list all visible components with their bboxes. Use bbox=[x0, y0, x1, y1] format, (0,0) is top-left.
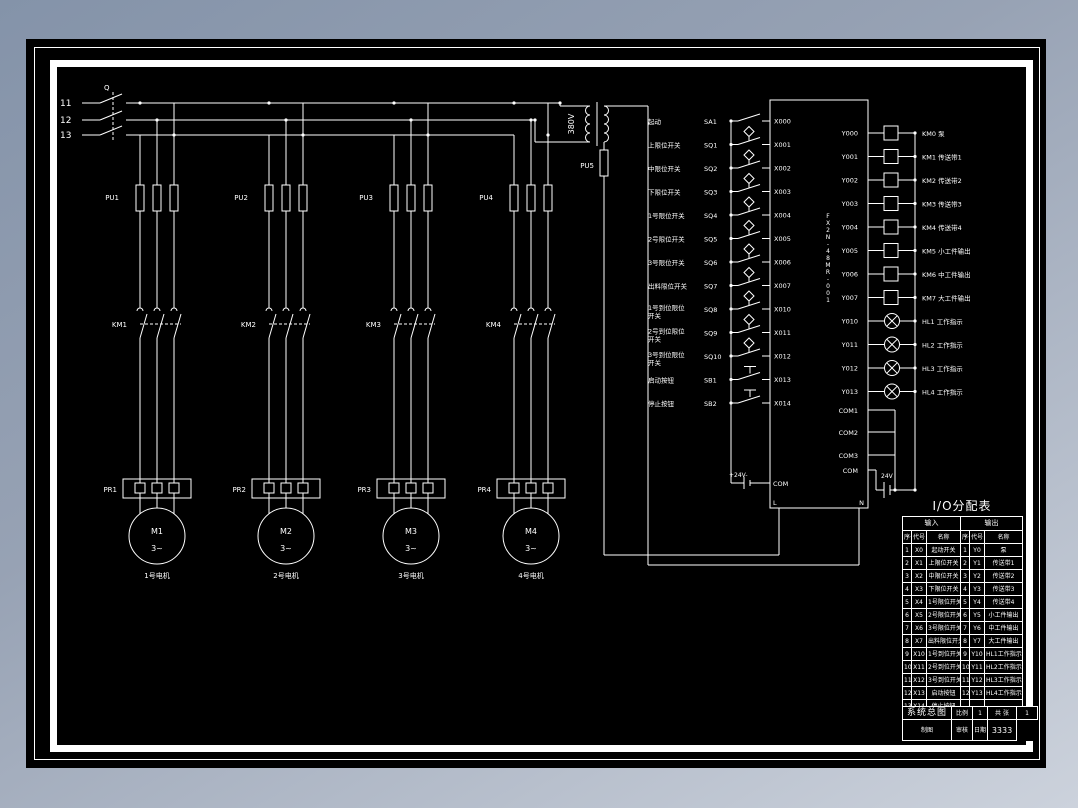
svg-text:3~: 3~ bbox=[151, 544, 163, 553]
io-table-row: 6X52号限位开关6Y5小工件输出 bbox=[903, 609, 1023, 622]
plc-input-row-X011: 2号到位限位开关SQ9X011 bbox=[648, 315, 791, 344]
io-table-cell: X0 bbox=[912, 544, 927, 557]
plc-input-row-X007: 出料限位开关SQ7X007 bbox=[648, 268, 791, 291]
svg-text:HL3 工作指示: HL3 工作指示 bbox=[922, 364, 963, 373]
io-table-cell: 6 bbox=[961, 609, 970, 622]
svg-text:Q: Q bbox=[104, 84, 110, 92]
io-table-cell: 上限位开关 bbox=[927, 557, 961, 570]
io-table-cell: 3 bbox=[961, 570, 970, 583]
io-table-column-header: 序号 bbox=[903, 531, 912, 544]
svg-text:Y012: Y012 bbox=[841, 365, 858, 373]
svg-text:KM2: KM2 bbox=[241, 321, 256, 329]
svg-text:KM0 泵: KM0 泵 bbox=[922, 130, 945, 138]
svg-text:COM3: COM3 bbox=[839, 452, 858, 460]
svg-text:PU5: PU5 bbox=[580, 162, 594, 170]
io-table-cell: 1 bbox=[961, 544, 970, 557]
svg-text:SQ1: SQ1 bbox=[704, 142, 717, 150]
svg-text:X010: X010 bbox=[774, 306, 791, 314]
svg-text:X001: X001 bbox=[774, 141, 791, 149]
io-table-cell: 1号到位开关 bbox=[927, 648, 961, 661]
io-table-cell: 中限位开关 bbox=[927, 570, 961, 583]
io-table-cell: 12 bbox=[961, 687, 970, 700]
cad-viewport[interactable]: 111213QPU1KM1PR1M13~1号电机PU2KM2PR2M23~2号电… bbox=[0, 0, 1078, 808]
svg-text:SQ8: SQ8 bbox=[704, 306, 717, 314]
svg-text:L: L bbox=[773, 499, 777, 507]
svg-text:Y002: Y002 bbox=[841, 177, 858, 185]
io-table-cell: 2 bbox=[961, 557, 970, 570]
title-block-number: 3333 bbox=[988, 720, 1017, 741]
svg-text:SQ4: SQ4 bbox=[704, 212, 717, 220]
svg-text:Y010: Y010 bbox=[841, 318, 858, 326]
plc-input-section: +24V-COM起动SA1X000上限位开关SQ1X001中限位开关SQ2X00… bbox=[648, 114, 791, 489]
plc-input-row-X002: 中限位开关SQ2X002 bbox=[648, 150, 791, 173]
svg-text:开关: 开关 bbox=[648, 311, 662, 320]
plc-output-row-Y004: Y004KM4 传送带4 bbox=[841, 220, 962, 234]
svg-text:出料限位开关: 出料限位开关 bbox=[648, 282, 688, 291]
plc-output-row-Y002: Y002KM2 传送带2 bbox=[841, 173, 962, 187]
svg-text:M1: M1 bbox=[151, 527, 163, 536]
svg-text:SQ9: SQ9 bbox=[704, 330, 717, 338]
io-table-cell: HL4工作指示 bbox=[985, 687, 1023, 700]
svg-text:PU4: PU4 bbox=[479, 194, 493, 202]
svg-text:24V: 24V bbox=[881, 473, 894, 480]
io-allocation-table: 输入输出序号代号名称序号代号名称1X0起动开关1Y0泵2X1上限位开关2Y1传送… bbox=[902, 516, 1023, 713]
io-table-cell: 3号到位开关 bbox=[927, 674, 961, 687]
title-block-sheet-value: 1 bbox=[1017, 707, 1038, 720]
svg-text:12: 12 bbox=[60, 116, 71, 126]
io-table-cell: X13 bbox=[912, 687, 927, 700]
io-table-cell: Y11 bbox=[970, 661, 985, 674]
io-table-cell: 传送带2 bbox=[985, 570, 1023, 583]
motor-branch-3: PU3KM3PR3M33~3号电机 bbox=[357, 101, 445, 580]
svg-text:X002: X002 bbox=[774, 165, 791, 173]
svg-text:PU1: PU1 bbox=[105, 194, 119, 202]
svg-text:380V: 380V bbox=[567, 113, 576, 134]
svg-text:X005: X005 bbox=[774, 235, 791, 243]
svg-text:X013: X013 bbox=[774, 376, 791, 384]
plc-output-section: Y000KM0 泵Y001KM1 传送带1Y002KM2 传送带2Y003KM3… bbox=[839, 126, 971, 498]
svg-text:M2: M2 bbox=[280, 527, 292, 536]
plc-input-row-X001: 上限位开关SQ1X001 bbox=[648, 127, 791, 150]
svg-text:HL2 工作指示: HL2 工作指示 bbox=[922, 341, 963, 350]
svg-text:KM3 传送带3: KM3 传送带3 bbox=[922, 200, 962, 209]
svg-text:3~: 3~ bbox=[405, 544, 417, 553]
io-table-cell: 启动按钮 bbox=[927, 687, 961, 700]
io-table-row: 3X2中限位开关3Y2传送带2 bbox=[903, 570, 1023, 583]
svg-text:KM7 大工件输出: KM7 大工件输出 bbox=[922, 294, 971, 303]
svg-text:2号电机: 2号电机 bbox=[273, 571, 298, 580]
io-table-row: 2X1上限位开关2Y1传送带1 bbox=[903, 557, 1023, 570]
plc-output-row-Y012: Y012HL3 工作指示 bbox=[841, 361, 964, 376]
title-block-drawn-label: 制图 bbox=[903, 720, 952, 741]
plc-input-row-X000: 起动SA1X000 bbox=[648, 114, 791, 126]
plc-input-row-X006: 3号限位开关SQ6X006 bbox=[648, 244, 791, 267]
io-table-cell: 10 bbox=[903, 661, 912, 674]
svg-text:M4: M4 bbox=[525, 527, 537, 536]
io-table-cell: 12 bbox=[903, 687, 912, 700]
io-table-cell: Y13 bbox=[970, 687, 985, 700]
svg-text:Y001: Y001 bbox=[841, 153, 858, 161]
io-table-subheader: 序号代号名称序号代号名称 bbox=[903, 531, 1023, 544]
io-table-cell: 传送带4 bbox=[985, 596, 1023, 609]
io-table-row: 10X112号到位开关10Y11HL2工作指示 bbox=[903, 661, 1023, 674]
svg-text:Y011: Y011 bbox=[841, 341, 858, 349]
io-table-column-header: 代号 bbox=[912, 531, 927, 544]
svg-text:SQ6: SQ6 bbox=[704, 259, 717, 267]
io-table-cell: 8 bbox=[903, 635, 912, 648]
io-table-cell: X10 bbox=[912, 648, 927, 661]
io-table-cell: Y1 bbox=[970, 557, 985, 570]
io-table-row: 7X63号限位开关7Y6中工件输出 bbox=[903, 622, 1023, 635]
io-table-cell: X5 bbox=[912, 609, 927, 622]
svg-text:PR4: PR4 bbox=[477, 486, 491, 494]
io-table-row: 8X7出料限位开关8Y7大工件输出 bbox=[903, 635, 1023, 648]
svg-text:X006: X006 bbox=[774, 259, 791, 267]
svg-text:SB2: SB2 bbox=[704, 400, 717, 408]
svg-text:4号电机: 4号电机 bbox=[518, 571, 543, 580]
svg-text:KM1 传送带1: KM1 传送带1 bbox=[922, 153, 962, 162]
io-table-cell: Y2 bbox=[970, 570, 985, 583]
svg-text:COM2: COM2 bbox=[839, 429, 858, 437]
io-table-cell: Y10 bbox=[970, 648, 985, 661]
title-block-title: 系统总图 bbox=[903, 707, 952, 720]
io-table-cell: 10 bbox=[961, 661, 970, 674]
plc-com-terminal-COM: COM bbox=[843, 467, 884, 490]
svg-text:2号到位限位: 2号到位限位 bbox=[648, 327, 685, 336]
plc-output-row-Y006: Y006KM6 中工件输出 bbox=[841, 267, 971, 281]
title-block-sheet-label: 共 张 bbox=[988, 707, 1017, 720]
io-table-cell: 7 bbox=[961, 622, 970, 635]
io-table-column-header: 代号 bbox=[970, 531, 985, 544]
title-block-check-label: 审核 bbox=[952, 720, 973, 741]
svg-text:KM4: KM4 bbox=[486, 321, 502, 329]
io-table-cell: 2号限位开关 bbox=[927, 609, 961, 622]
io-table-cell: X12 bbox=[912, 674, 927, 687]
io-table-cell: X4 bbox=[912, 596, 927, 609]
io-table-cell: HL3工作指示 bbox=[985, 674, 1023, 687]
power-rails: 111213Q bbox=[60, 84, 560, 141]
svg-text:PU3: PU3 bbox=[359, 194, 373, 202]
svg-text:Y013: Y013 bbox=[841, 388, 858, 396]
svg-text:X004: X004 bbox=[774, 212, 791, 220]
io-table-cell: 11 bbox=[903, 674, 912, 687]
title-block: 系统总图比例1共 张1制图审核日期3333 bbox=[902, 706, 1038, 741]
svg-text:SQ2: SQ2 bbox=[704, 165, 717, 173]
svg-text:1号限位开关: 1号限位开关 bbox=[648, 211, 685, 220]
svg-text:X007: X007 bbox=[774, 282, 791, 290]
io-table-cell: 6 bbox=[903, 609, 912, 622]
io-table-cell: Y7 bbox=[970, 635, 985, 648]
svg-text:3号电机: 3号电机 bbox=[398, 571, 423, 580]
io-table-cell: 1号限位开关 bbox=[927, 596, 961, 609]
svg-text:开关: 开关 bbox=[648, 335, 662, 344]
svg-text:SQ3: SQ3 bbox=[704, 189, 717, 197]
plc-input-row-X014: 停止按钮SB2X014 bbox=[648, 390, 791, 408]
io-table-column-header: 序号 bbox=[961, 531, 970, 544]
svg-text:KM5 小工件输出: KM5 小工件输出 bbox=[922, 247, 971, 256]
plc-output-row-Y000: Y000KM0 泵 bbox=[841, 126, 945, 140]
svg-text:COM: COM bbox=[773, 480, 788, 488]
svg-text:停止按钮: 停止按钮 bbox=[648, 399, 675, 408]
io-table-cell: 4 bbox=[961, 583, 970, 596]
svg-text:HL1 工作指示: HL1 工作指示 bbox=[922, 317, 963, 326]
svg-text:中限位开关: 中限位开关 bbox=[648, 164, 681, 173]
svg-text:SB1: SB1 bbox=[704, 377, 717, 385]
io-table-cell: 2 bbox=[903, 557, 912, 570]
plc-input-row-X013: 启动按钮SB1X013 bbox=[648, 367, 791, 385]
plc-model-label: FX2N-48MR-001 bbox=[825, 213, 830, 304]
io-table-cell: 4 bbox=[903, 583, 912, 596]
io-table-row: 1X0起动开关1Y0泵 bbox=[903, 544, 1023, 557]
svg-text:3~: 3~ bbox=[525, 544, 537, 553]
plc-output-row-Y001: Y001KM1 传送带1 bbox=[841, 150, 962, 164]
svg-text:Y007: Y007 bbox=[841, 294, 858, 302]
plc-input-row-X005: 2号限位开关SQ5X005 bbox=[648, 221, 791, 244]
svg-text:3~: 3~ bbox=[280, 544, 292, 553]
svg-text:1号到位限位: 1号到位限位 bbox=[648, 303, 685, 312]
svg-text:SA1: SA1 bbox=[704, 118, 717, 126]
io-table-cell: 起动开关 bbox=[927, 544, 961, 557]
svg-text:KM1: KM1 bbox=[112, 321, 127, 329]
svg-text:COM1: COM1 bbox=[839, 407, 858, 415]
io-table-cell: X3 bbox=[912, 583, 927, 596]
io-table-cell: Y6 bbox=[970, 622, 985, 635]
svg-text:X003: X003 bbox=[774, 188, 791, 196]
plc-output-row-Y003: Y003KM3 传送带3 bbox=[841, 197, 962, 211]
io-table-cell: 7 bbox=[903, 622, 912, 635]
plc-com-terminal-COM1: COM1 bbox=[839, 407, 895, 415]
svg-text:2号限位开关: 2号限位开关 bbox=[648, 235, 685, 244]
plc-input-row-X012: 3号到位限位开关SQ10X012 bbox=[648, 338, 791, 367]
svg-text:11: 11 bbox=[60, 99, 71, 109]
io-table-cell: 8 bbox=[961, 635, 970, 648]
io-table-cell: HL1工作指示 bbox=[985, 648, 1023, 661]
io-table-row: 11X123号到位开关11Y12HL3工作指示 bbox=[903, 674, 1023, 687]
plc-output-row-Y013: Y013HL4 工作指示 bbox=[841, 384, 964, 399]
io-table-cell: Y5 bbox=[970, 609, 985, 622]
io-table-row: 4X3下限位开关4Y3传送带3 bbox=[903, 583, 1023, 596]
svg-text:SQ5: SQ5 bbox=[704, 236, 717, 244]
svg-text:X011: X011 bbox=[774, 329, 791, 337]
svg-text:PR2: PR2 bbox=[232, 486, 246, 494]
io-table-cell: 9 bbox=[903, 648, 912, 661]
plc-output-row-Y005: Y005KM5 小工件输出 bbox=[841, 244, 971, 258]
svg-text:M3: M3 bbox=[405, 527, 417, 536]
plc-output-row-Y007: Y007KM7 大工件输出 bbox=[841, 291, 971, 305]
svg-text:PU2: PU2 bbox=[234, 194, 248, 202]
io-table-cell: X2 bbox=[912, 570, 927, 583]
plc-input-row-X004: 1号限位开关SQ4X004 bbox=[648, 197, 791, 220]
svg-text:Y005: Y005 bbox=[841, 247, 858, 255]
io-table-cell: Y3 bbox=[970, 583, 985, 596]
io-table-cell: 中工件输出 bbox=[985, 622, 1023, 635]
io-table-cell: Y12 bbox=[970, 674, 985, 687]
svg-text:X012: X012 bbox=[774, 353, 791, 361]
plc-input-row-X003: 下限位开关SQ3X003 bbox=[648, 174, 791, 197]
svg-text:Y000: Y000 bbox=[841, 130, 858, 138]
io-table-cell: 泵 bbox=[985, 544, 1023, 557]
plc-input-row-X010: 1号到位限位开关SQ8X010 bbox=[648, 291, 791, 320]
svg-text:3号到位限位: 3号到位限位 bbox=[648, 350, 685, 359]
svg-text:1号电机: 1号电机 bbox=[144, 571, 169, 580]
svg-text:N: N bbox=[859, 499, 864, 507]
io-table-cell: X6 bbox=[912, 622, 927, 635]
svg-text:上限位开关: 上限位开关 bbox=[648, 141, 681, 150]
svg-text:KM4 传送带4: KM4 传送带4 bbox=[922, 223, 962, 232]
motor-branch-2: PU2KM2PR2M23~2号电机 bbox=[232, 101, 320, 580]
io-table-cell: 传送带1 bbox=[985, 557, 1023, 570]
svg-text:13: 13 bbox=[60, 131, 71, 141]
svg-text:3号限位开关: 3号限位开关 bbox=[648, 258, 685, 267]
io-table-cell: Y0 bbox=[970, 544, 985, 557]
io-table-section-header: 输出 bbox=[961, 517, 1023, 531]
plc-output-row-Y011: Y011HL2 工作指示 bbox=[841, 337, 964, 352]
io-table-column-header: 名称 bbox=[985, 531, 1023, 544]
svg-text:SQ7: SQ7 bbox=[704, 283, 717, 291]
control-transformer: 380VPU5 bbox=[533, 101, 859, 565]
io-table-cell: X7 bbox=[912, 635, 927, 648]
svg-text:开关: 开关 bbox=[648, 358, 662, 367]
svg-text:Y006: Y006 bbox=[841, 271, 858, 279]
svg-text:X000: X000 bbox=[774, 118, 791, 126]
io-table-cell: 1 bbox=[903, 544, 912, 557]
motor-branch-4: PU4KM4PR4M43~4号电机 bbox=[477, 101, 565, 580]
io-table-cell: HL2工作指示 bbox=[985, 661, 1023, 674]
svg-text:KM2 传送带2: KM2 传送带2 bbox=[922, 176, 962, 185]
svg-text:起动: 起动 bbox=[648, 118, 662, 126]
plc-output-row-Y010: Y010HL1 工作指示 bbox=[841, 314, 964, 329]
io-table-cell: Y4 bbox=[970, 596, 985, 609]
io-table-row: 5X41号限位开关5Y4传送带4 bbox=[903, 596, 1023, 609]
plc-com-terminal-COM2: COM2 bbox=[839, 429, 895, 437]
io-table-cell: X1 bbox=[912, 557, 927, 570]
svg-text:下限位开关: 下限位开关 bbox=[648, 188, 681, 197]
svg-text:X014: X014 bbox=[774, 400, 791, 408]
io-table-cell: X11 bbox=[912, 661, 927, 674]
io-table-cell: 5 bbox=[961, 596, 970, 609]
io-table-cell: 11 bbox=[961, 674, 970, 687]
title-block-scale-value: 1 bbox=[973, 707, 988, 720]
svg-text:COM: COM bbox=[843, 467, 858, 475]
svg-text:Y003: Y003 bbox=[841, 200, 858, 208]
io-table-row: 12X13启动按钮12Y13HL4工作指示 bbox=[903, 687, 1023, 700]
io-table-cell: 2号到位开关 bbox=[927, 661, 961, 674]
svg-text:HL4 工作指示: HL4 工作指示 bbox=[922, 388, 963, 397]
motor-branch-1: PU1KM1PR1M13~1号电机 bbox=[103, 101, 191, 580]
io-table-cell: 小工件输出 bbox=[985, 609, 1023, 622]
svg-text:Y004: Y004 bbox=[841, 224, 858, 232]
io-table-cell: 下限位开关 bbox=[927, 583, 961, 596]
plc-com-terminal-COM3: COM3 bbox=[839, 452, 895, 460]
svg-text:KM3: KM3 bbox=[366, 321, 381, 329]
svg-text:KM6 中工件输出: KM6 中工件输出 bbox=[922, 270, 971, 279]
io-table-cell: 大工件输出 bbox=[985, 635, 1023, 648]
svg-text:+24V-: +24V- bbox=[729, 472, 748, 479]
svg-text:启动按钮: 启动按钮 bbox=[648, 376, 675, 385]
svg-text:SQ10: SQ10 bbox=[704, 353, 722, 361]
io-table-cell: 传送带3 bbox=[985, 583, 1023, 596]
io-table-cell: 5 bbox=[903, 596, 912, 609]
svg-text:PR3: PR3 bbox=[357, 486, 371, 494]
io-table-cell: 9 bbox=[961, 648, 970, 661]
io-table-cell: 3 bbox=[903, 570, 912, 583]
io-table-title: I/O分配表 bbox=[902, 497, 1022, 514]
io-table-cell: 出料限位开关 bbox=[927, 635, 961, 648]
io-table-column-header: 名称 bbox=[927, 531, 961, 544]
plc-unit: LNFX2N-48MR-001 bbox=[770, 100, 868, 508]
title-block-date-label: 日期 bbox=[973, 720, 988, 741]
io-table-cell: 3号限位开关 bbox=[927, 622, 961, 635]
title-block-scale-label: 比例 bbox=[952, 707, 973, 720]
svg-text:PR1: PR1 bbox=[103, 486, 117, 494]
io-table-row: 9X101号到位开关9Y10HL1工作指示 bbox=[903, 648, 1023, 661]
io-table-header: 输入输出 bbox=[903, 517, 1023, 531]
io-table-section-header: 输入 bbox=[903, 517, 961, 531]
